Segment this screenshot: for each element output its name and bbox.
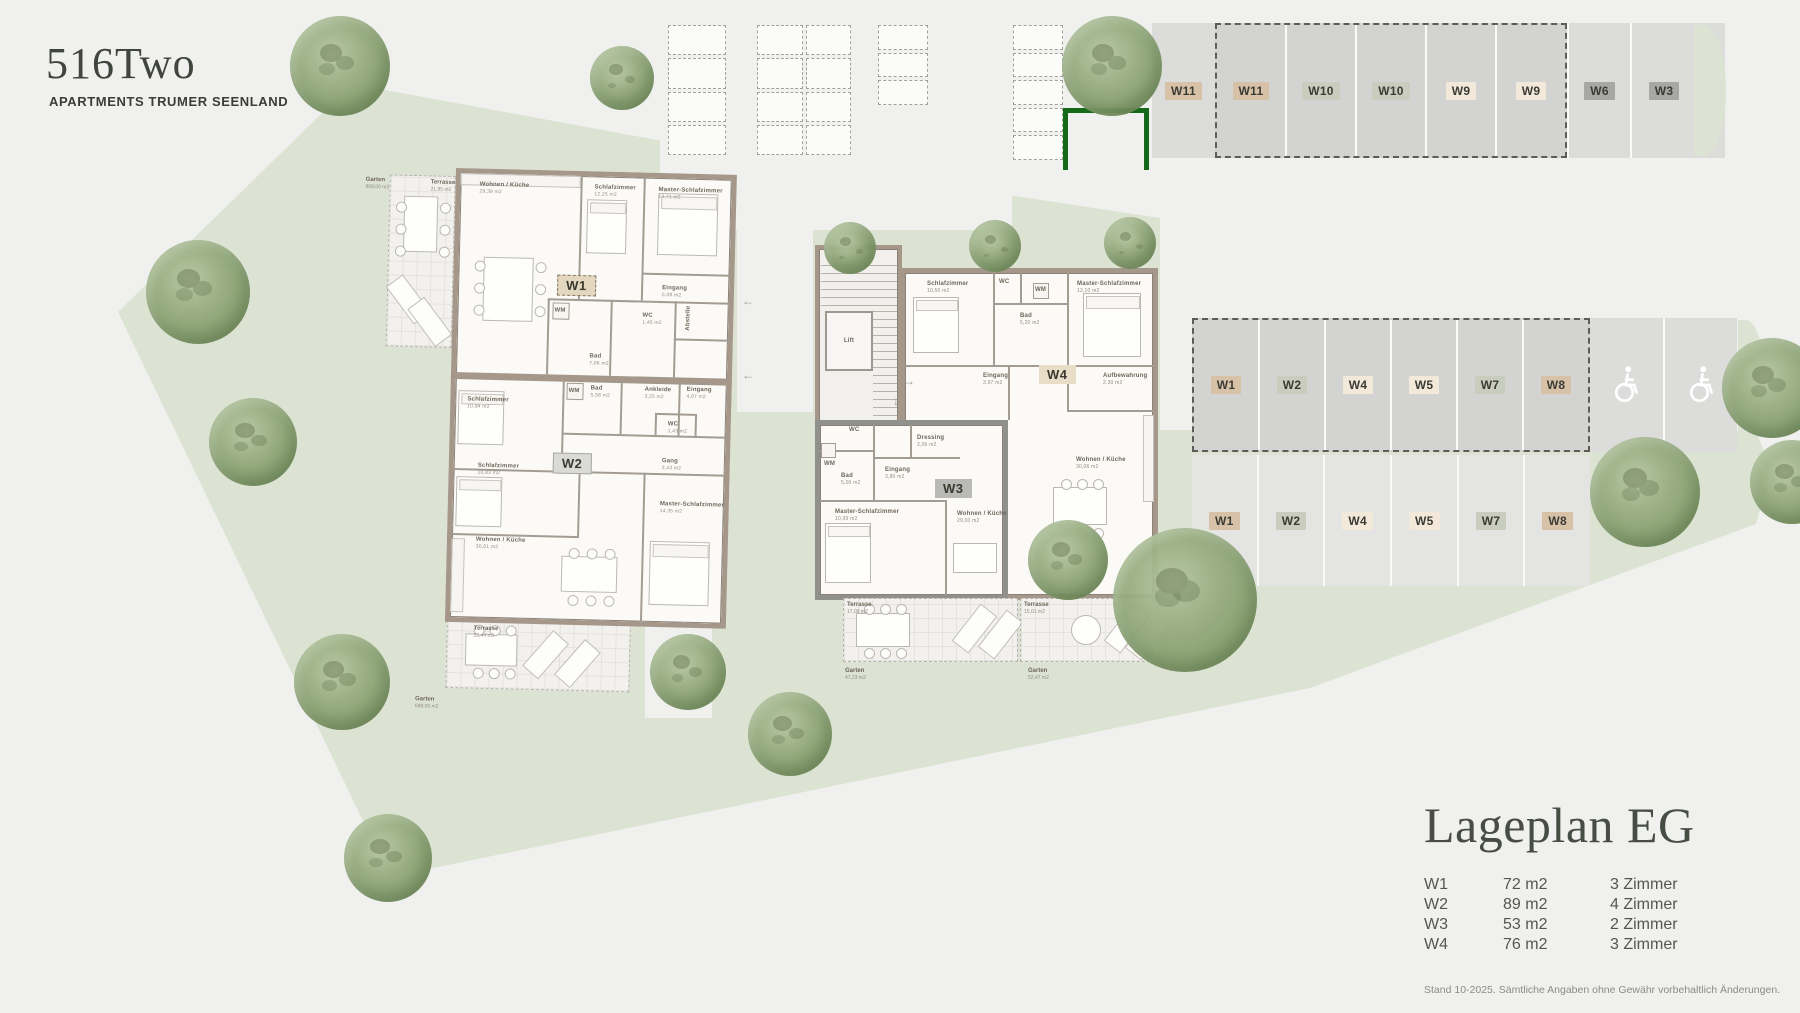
room-label: Bad5,58 m2 (590, 385, 610, 399)
wall (993, 303, 1067, 305)
parking-stall-label: W9 (1516, 82, 1547, 100)
tree (1113, 528, 1257, 672)
wall (910, 425, 912, 457)
terrace-label: Terrasse22,44 m2 (473, 626, 498, 641)
garden-plot (806, 25, 852, 55)
parking-stall: W2 (1257, 455, 1324, 586)
legend-unit-area: 89 m2 (1503, 896, 1610, 914)
legend-unit-code: W2 (1424, 896, 1503, 914)
tree (1062, 16, 1162, 116)
legend-unit-code: W3 (1424, 916, 1503, 934)
parking-stall-label: W8 (1542, 512, 1573, 530)
chair (505, 668, 516, 679)
parking-stall-label: W5 (1409, 512, 1440, 530)
kitchen-counter (1143, 415, 1154, 502)
wall (820, 500, 945, 502)
legend-unit-rooms: 2 Zimmer (1610, 916, 1678, 934)
parking-stall: W7 (1457, 455, 1524, 586)
wall (905, 365, 1153, 367)
terrace-label: Terrasse17,09 m2 (847, 602, 872, 616)
garden-plot (668, 125, 726, 155)
tree (1028, 520, 1108, 600)
garden-plot (806, 58, 852, 88)
chair (1061, 479, 1072, 490)
terrace-label: Terrasse15,01 m2 (1024, 602, 1049, 616)
garden-plot (757, 25, 803, 55)
legend-unit-area: 53 m2 (1503, 916, 1610, 934)
room-label: Master-Schlafzimmer12,10 m2 (1077, 281, 1141, 295)
chair (864, 648, 875, 659)
tree (294, 634, 390, 730)
plan-title: Lageplan EG (1424, 796, 1695, 854)
room-label: Master-Schlafzimmer14,35 m2 (660, 501, 724, 517)
parking-stall-label: W11 (1233, 82, 1270, 100)
tree (146, 240, 250, 344)
chair (896, 648, 907, 659)
legend-unit-rooms: 4 Zimmer (1610, 896, 1678, 914)
bed (648, 541, 710, 606)
project-logo-subtitle: APARTMENTS TRUMER SEENLAND (49, 94, 288, 109)
legend-row: W3 53 m2 2 Zimmer (1424, 916, 1678, 934)
accessible-parking (1590, 318, 1737, 452)
parking-stall: W5 (1390, 320, 1456, 450)
garden-plot (878, 25, 928, 50)
dining-table (561, 556, 618, 593)
room-label: Schlafzimmer12,25 m2 (594, 184, 636, 199)
room-label: Schlafzimmer10,84 m2 (467, 396, 509, 411)
tree (1104, 217, 1156, 269)
building-left-group: Garten808,00 m2 Terrasse21,85 m2 Terrass… (443, 168, 806, 706)
parking-row-bottom: W1 W2 W4 W5 W7 W8 (1192, 455, 1590, 586)
room-label: Ankleide3,25 m2 (644, 387, 671, 402)
apartment-badge-w2: W2 (553, 452, 592, 474)
chair (473, 668, 484, 679)
room-label: Wohnen / Küche29,00 m2 (957, 511, 1007, 525)
legend-unit-area: 76 m2 (1503, 936, 1610, 954)
parking-stall: W11 (1217, 25, 1285, 156)
entry-arrow-icon: ← (742, 368, 754, 382)
parking-stall: W4 (1323, 455, 1390, 586)
parking-stall: W10 (1355, 25, 1425, 156)
tree (290, 16, 390, 116)
parking-stall: W6 (1567, 23, 1630, 158)
room-label: Bad5,20 m2 (1020, 313, 1039, 327)
kitchen-counter (450, 538, 465, 612)
legend-unit-area: 72 m2 (1503, 876, 1610, 894)
garden-label: Garten47,23 m2 (845, 668, 866, 682)
garden-plot (878, 53, 928, 78)
terrace-w1 (386, 174, 456, 348)
parking-stall-label: W11 (1165, 82, 1202, 100)
parking-stall-label: W4 (1343, 376, 1374, 394)
parking-stall-label: W4 (1342, 512, 1373, 530)
wheelchair-icon (1683, 364, 1719, 406)
parking-stall: W9 (1425, 25, 1495, 156)
garden-plot (757, 58, 803, 88)
room-label: WM (554, 307, 565, 314)
parking-stall-label: W10 (1372, 82, 1410, 100)
legend-row: W4 76 m2 3 Zimmer (1424, 936, 1678, 954)
bed (455, 476, 502, 527)
bed (1083, 293, 1141, 357)
parking-stall-label: W8 (1541, 376, 1572, 394)
parking-stall: W1 (1194, 320, 1258, 450)
bed (913, 297, 959, 353)
parking-stall-label: W9 (1446, 82, 1477, 100)
site-plan-canvas: W11 W11 W10 W10 W9 W9 W6 W3 W1 W2 W4 W5 … (0, 0, 1800, 1013)
chair (896, 604, 907, 615)
legend-unit-rooms: 3 Zimmer (1610, 876, 1678, 894)
room-label: Wohnen / Küche29,39 m2 (479, 182, 529, 197)
garden-plot (806, 125, 852, 155)
room-label: WC (999, 279, 1009, 286)
parking-stall: W8 (1523, 455, 1590, 586)
parking-stall-label: W7 (1475, 376, 1506, 394)
garden-plot (1013, 53, 1063, 78)
garden-label: Garten52,47 m2 (1028, 668, 1049, 682)
garden-plot-grid (668, 25, 726, 155)
entry-arrow-icon: ↓ (893, 394, 899, 408)
wall (1008, 365, 1010, 420)
garden-plot (1013, 135, 1063, 160)
chair (880, 648, 891, 659)
apartment-badge-w3: W3 (935, 479, 972, 498)
chair (439, 225, 450, 236)
parking-stall: W2 (1258, 320, 1324, 450)
wheelchair-icon (1608, 364, 1644, 406)
room-label: Eingang3,80 m2 (885, 467, 910, 481)
apartment-badge-w4: W4 (1039, 365, 1076, 384)
legend-row: W1 72 m2 3 Zimmer (1424, 876, 1678, 894)
parking-stall: W9 (1495, 25, 1565, 156)
parking-stall-label: W1 (1211, 376, 1242, 394)
chair (1077, 479, 1088, 490)
parking-strip-top: W11 W11 W10 W10 W9 W9 W6 W3 (1152, 23, 1725, 158)
tree (969, 220, 1021, 272)
room-label: Bad5,00 m2 (841, 473, 860, 487)
room-label: Dressing2,06 m2 (917, 435, 944, 449)
wall (993, 273, 995, 365)
parking-stall-label: W2 (1277, 376, 1308, 394)
tree (650, 634, 726, 710)
parking-stall-label: W7 (1476, 512, 1507, 530)
parking-stall: W10 (1285, 25, 1355, 156)
wall (1067, 273, 1069, 365)
room-label: WM (824, 461, 835, 468)
wall (873, 425, 875, 500)
tree (824, 222, 876, 274)
chair (880, 604, 891, 615)
garden-plot (668, 25, 726, 55)
parking-stall-label: W5 (1409, 376, 1440, 394)
room-label: WM (1035, 287, 1046, 294)
chair (1093, 479, 1104, 490)
parking-stall: W5 (1390, 455, 1457, 586)
room-label: Gang3,43 m2 (662, 458, 682, 472)
room-label: Schlafzimmer10,83 m2 (477, 463, 519, 478)
bed (657, 193, 718, 256)
parking-stall: W3 (1630, 23, 1696, 158)
lift: Lift (825, 311, 873, 371)
wall (945, 500, 947, 595)
garden-plot (668, 58, 726, 88)
legend-row: W2 89 m2 4 Zimmer (1424, 896, 1678, 914)
dining-table (1053, 487, 1107, 525)
garden-plot (1013, 108, 1063, 133)
legend-unit-rooms: 3 Zimmer (1610, 936, 1678, 954)
room-label: Wohnen / Küche30,61 m2 (476, 537, 526, 552)
legend-unit-code: W4 (1424, 936, 1503, 954)
tree (1590, 437, 1700, 547)
wall (1020, 273, 1022, 303)
garden-plot-grid (878, 25, 928, 105)
parking-stall-label: W1 (1209, 512, 1240, 530)
room-label: Aufbewahrung2,30 m2 (1103, 373, 1147, 387)
tree (590, 46, 654, 110)
room-label: Master-Schlafzimmer13,71 m2 (658, 187, 722, 203)
room-label: Bad7,06 m2 (589, 353, 609, 367)
room-label: Eingang4,07 m2 (686, 387, 711, 402)
dining-table (482, 257, 534, 322)
highlighted-garage-outline (1063, 108, 1149, 170)
parking-stall: W4 (1324, 320, 1390, 450)
apartment-badge-w1: W1 (557, 275, 596, 297)
dining-table (953, 543, 997, 573)
room-label: WC (849, 427, 859, 434)
outdoor-table (403, 196, 438, 253)
outdoor-table (1071, 615, 1101, 645)
parking-stall-label: W3 (1649, 82, 1680, 100)
tree (748, 692, 832, 776)
entry-arrow-icon: ← (742, 294, 754, 308)
entry-arrow-icon: → (903, 374, 915, 388)
room-label: Wohnen / Küche30,06 m2 (1076, 457, 1126, 471)
chair (440, 203, 451, 214)
legend-unit-code: W1 (1424, 876, 1503, 894)
garden-plot (757, 125, 803, 155)
room-label: WM (568, 388, 579, 395)
garden-label: Garten698,00 m2 (415, 696, 439, 711)
garden-plot (757, 92, 803, 122)
garden-plot (806, 92, 852, 122)
room-label: WC1,43 m2 (668, 421, 688, 435)
parking-stall-label: W6 (1584, 82, 1615, 100)
room-label: Schlafzimmer10,50 m2 (927, 281, 968, 295)
parking-stall-label: W2 (1276, 512, 1307, 530)
wall (1067, 410, 1153, 412)
garden-plot (1013, 80, 1063, 105)
bed (586, 199, 627, 254)
room-label: Eingang3,97 m2 (983, 373, 1008, 387)
garden-plot-grid (1013, 25, 1063, 160)
chair (395, 246, 406, 257)
outdoor-table (856, 613, 910, 647)
washing-machine (821, 443, 836, 458)
garden-label: Garten808,00 m2 (365, 177, 389, 192)
garden-plot (1013, 25, 1063, 50)
garden-plot (878, 80, 928, 105)
room-label: Master-Schlafzimmer10,99 m2 (835, 509, 899, 523)
chair (439, 247, 450, 258)
parking-stall: W8 (1522, 320, 1588, 450)
bed (825, 523, 871, 583)
garden-plot-grid (757, 25, 851, 155)
wall (873, 457, 960, 459)
room-label: WC1,45 m2 (642, 313, 662, 327)
project-logo: 516Two (46, 38, 196, 89)
tree (209, 398, 297, 486)
carport-dashed-group: W11 W10 W10 W9 W9 (1215, 23, 1567, 158)
room-label: Abstelle (685, 306, 693, 331)
terrace-label: Terrasse21,85 m2 (430, 179, 455, 194)
garden-plot (668, 92, 726, 122)
accessible-parking-stall (1590, 318, 1663, 452)
parking-stall: W7 (1456, 320, 1522, 450)
parking-stall-label: W10 (1302, 82, 1340, 100)
carport-dashed-group: W1 W2 W4 W5 W7 W8 (1192, 318, 1590, 452)
room-label: Eingang5,08 m2 (662, 285, 687, 300)
disclaimer-footnote: Stand 10-2025. Sämtliche Angaben ohne Ge… (1424, 984, 1780, 996)
tree (344, 814, 432, 902)
chair (489, 668, 500, 679)
parking-stall: W11 (1152, 23, 1215, 158)
